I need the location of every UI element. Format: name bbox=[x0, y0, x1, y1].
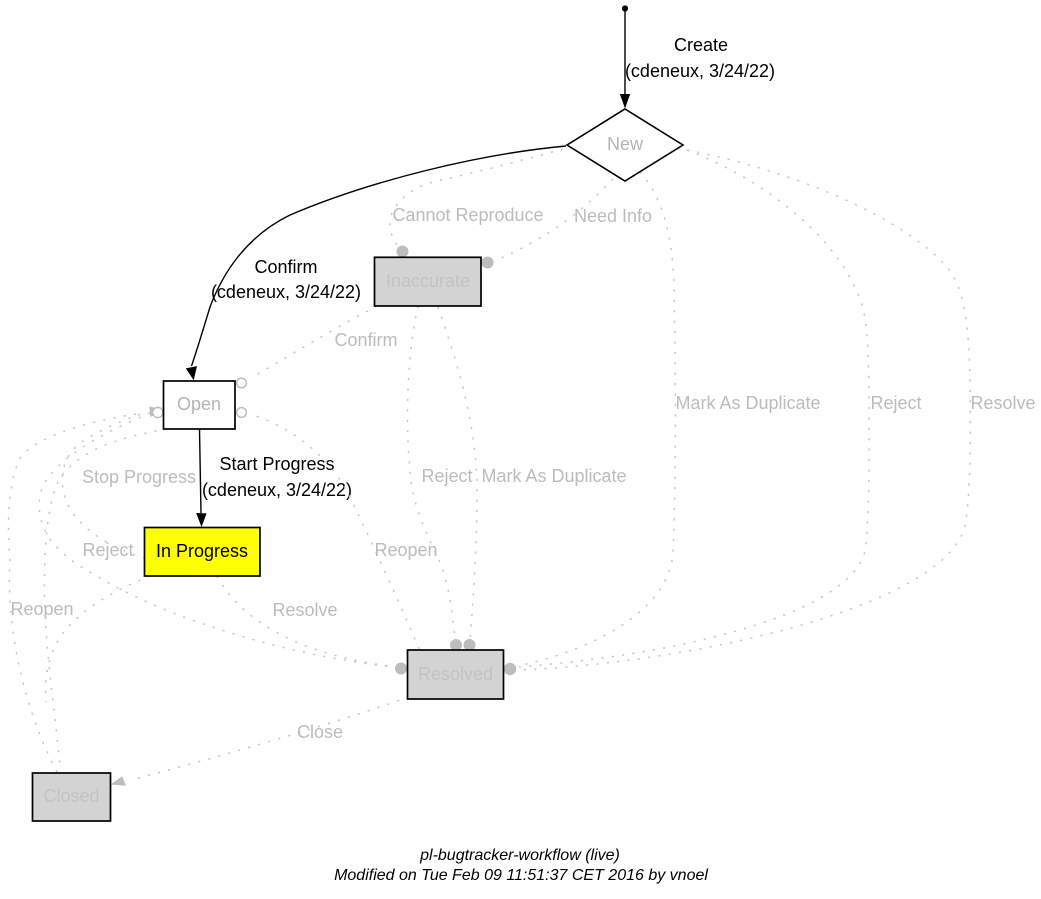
svg-text:Close: Close bbox=[297, 722, 343, 742]
svg-text:Need Info: Need Info bbox=[574, 206, 652, 226]
svg-text:Resolved: Resolved bbox=[418, 664, 493, 684]
svg-text:Reject: Reject bbox=[870, 393, 921, 413]
svg-text:Closed: Closed bbox=[43, 786, 99, 806]
svg-text:Confirm: Confirm bbox=[254, 257, 317, 277]
svg-text:Inaccurate: Inaccurate bbox=[386, 271, 470, 291]
svg-text:Cannot Reproduce: Cannot Reproduce bbox=[392, 205, 543, 225]
svg-text:Mark As Duplicate: Mark As Duplicate bbox=[675, 393, 820, 413]
svg-text:Resolve: Resolve bbox=[970, 393, 1035, 413]
svg-text:Reopen: Reopen bbox=[10, 599, 73, 619]
svg-text:Create: Create bbox=[674, 35, 728, 55]
svg-text:In Progress: In Progress bbox=[156, 541, 248, 561]
svg-text:Modified on Tue Feb 09 11:51:3: Modified on Tue Feb 09 11:51:37 CET 2016… bbox=[334, 867, 708, 884]
svg-text:Reject: Reject bbox=[421, 466, 472, 486]
svg-text:Open: Open bbox=[177, 394, 221, 414]
svg-text:Start Progress: Start Progress bbox=[219, 454, 334, 474]
svg-text:New: New bbox=[607, 134, 644, 154]
svg-text:Resolve: Resolve bbox=[272, 600, 337, 620]
svg-text:(cdeneux, 3/24/22): (cdeneux, 3/24/22) bbox=[211, 282, 361, 302]
svg-text:Confirm: Confirm bbox=[334, 330, 397, 350]
svg-text:Reopen: Reopen bbox=[374, 540, 437, 560]
svg-text:pl-bugtracker-workflow (live): pl-bugtracker-workflow (live) bbox=[419, 847, 620, 864]
svg-text:Mark As Duplicate: Mark As Duplicate bbox=[481, 466, 626, 486]
svg-text:(cdeneux, 3/24/22): (cdeneux, 3/24/22) bbox=[625, 61, 775, 81]
svg-text:Reject: Reject bbox=[82, 540, 133, 560]
svg-text:(cdeneux, 3/24/22): (cdeneux, 3/24/22) bbox=[202, 480, 352, 500]
svg-text:Stop Progress: Stop Progress bbox=[82, 467, 196, 487]
